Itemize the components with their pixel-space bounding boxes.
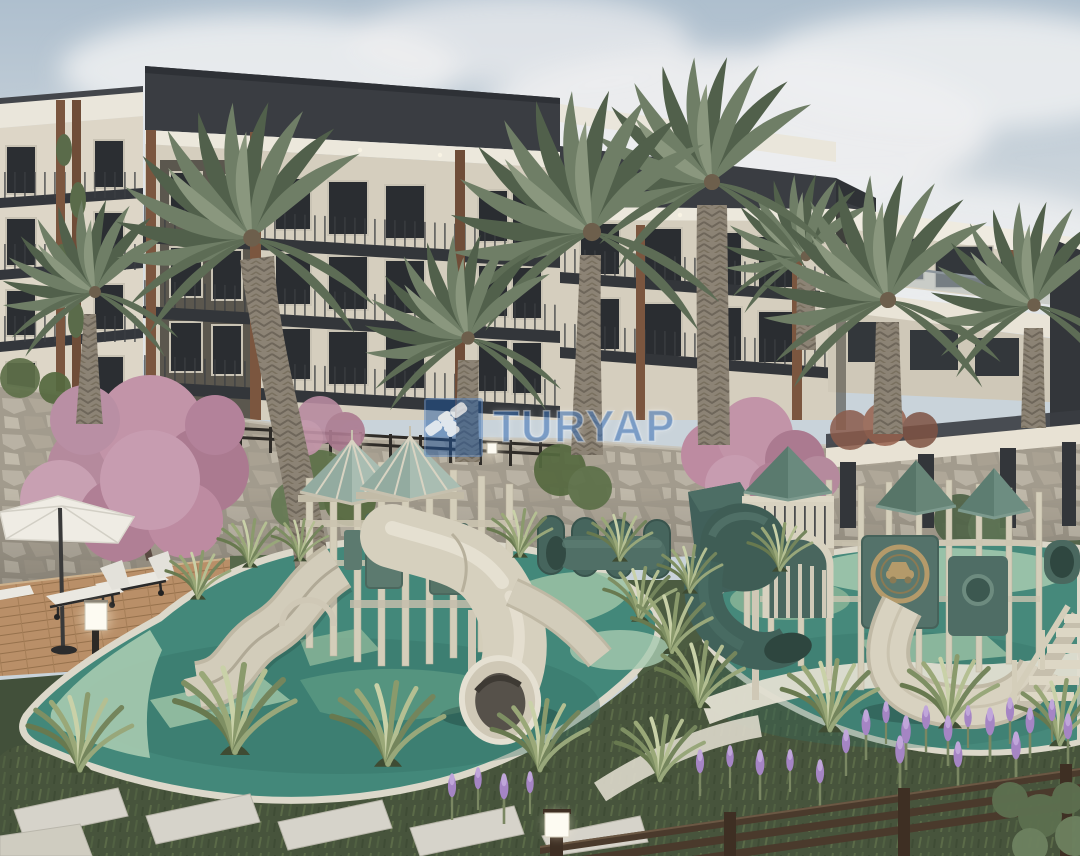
render-viewport: TURYAP (0, 0, 1080, 856)
fence-cube-lamp (543, 809, 571, 838)
scene-illustration (0, 0, 1080, 856)
